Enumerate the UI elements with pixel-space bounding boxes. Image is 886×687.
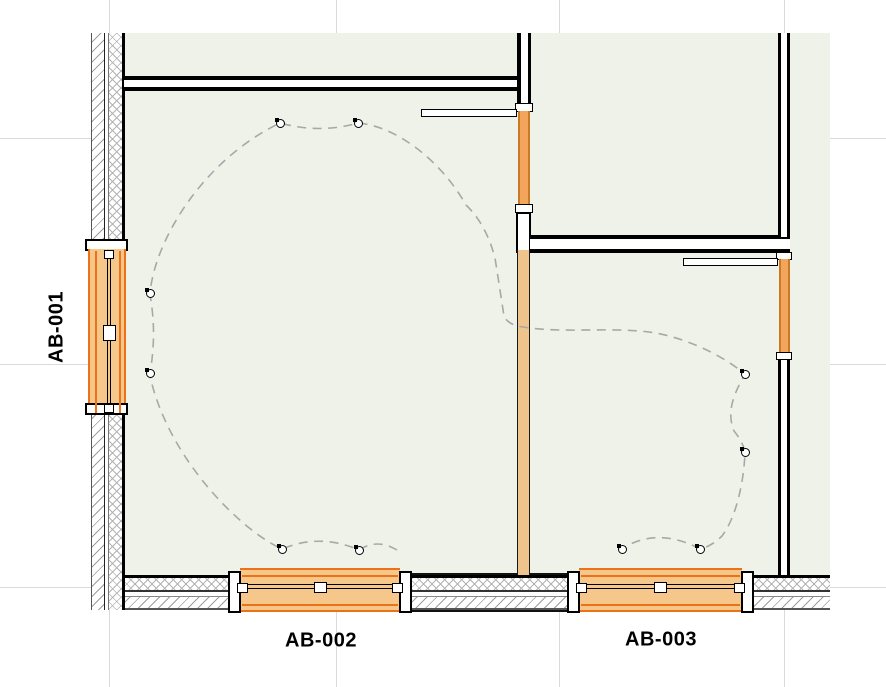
window-handle <box>314 582 327 593</box>
interior-wall-top-horizontal <box>124 76 518 91</box>
interior-wall-vertical-middle <box>516 212 531 253</box>
window-frame-block <box>104 250 114 259</box>
window-handle <box>654 582 667 593</box>
light-fixture[interactable] <box>696 545 705 554</box>
light-fixture[interactable] <box>741 448 750 457</box>
light-fixture[interactable] <box>146 289 155 298</box>
window-frame-block <box>576 583 587 593</box>
interior-wall-right-horizontal <box>530 235 790 253</box>
window-frame-block <box>237 583 248 593</box>
door-leaf-right[interactable] <box>683 258 778 266</box>
window-accent-line <box>242 575 398 577</box>
window-accent-line <box>95 251 97 413</box>
light-fixture[interactable] <box>741 370 750 379</box>
fixture-notch <box>353 118 357 122</box>
window-label-ab-002: AB-002 <box>285 630 357 653</box>
fixture-notch <box>354 545 358 549</box>
window-label-ab-003: AB-003 <box>625 629 697 652</box>
interior-wall-vertical-upper <box>517 33 531 110</box>
fixture-notch <box>275 118 279 122</box>
fixture-notch <box>617 544 621 548</box>
light-fixture[interactable] <box>276 119 285 128</box>
fixture-notch <box>740 447 744 451</box>
window-frame-block <box>392 583 403 593</box>
fixture-notch <box>277 544 281 548</box>
window-handle <box>103 325 116 341</box>
right-wall-upper <box>778 33 790 237</box>
window-frame-block <box>104 404 114 413</box>
window-accent-line <box>581 575 740 577</box>
door-jamb <box>776 352 792 360</box>
door-jamb <box>515 204 533 213</box>
right-wall-lower <box>778 359 790 575</box>
window-accent-line <box>581 604 740 606</box>
interior-wall-column <box>517 250 530 575</box>
light-fixture[interactable] <box>146 369 155 378</box>
floor-area <box>91 33 830 610</box>
fixture-notch <box>145 368 149 372</box>
window-accent-line <box>119 251 121 413</box>
floorplan-canvas: AB-001 AB-002 AB-003 <box>0 0 886 687</box>
light-fixture[interactable] <box>278 545 287 554</box>
light-fixture[interactable] <box>618 545 627 554</box>
fixture-notch <box>695 544 699 548</box>
light-fixture[interactable] <box>355 546 364 555</box>
window-frame-block <box>734 583 745 593</box>
fixture-notch <box>740 369 744 373</box>
pocket-door-vertical[interactable] <box>518 111 530 205</box>
pocket-door-right[interactable] <box>779 259 790 353</box>
fixture-notch <box>145 288 149 292</box>
bottom-wall-segment-outline <box>403 573 575 612</box>
window-accent-line <box>242 604 398 606</box>
light-fixture[interactable] <box>354 119 363 128</box>
window-label-ab-001: AB-001 <box>46 291 69 363</box>
door-leaf-top[interactable] <box>421 109 517 117</box>
